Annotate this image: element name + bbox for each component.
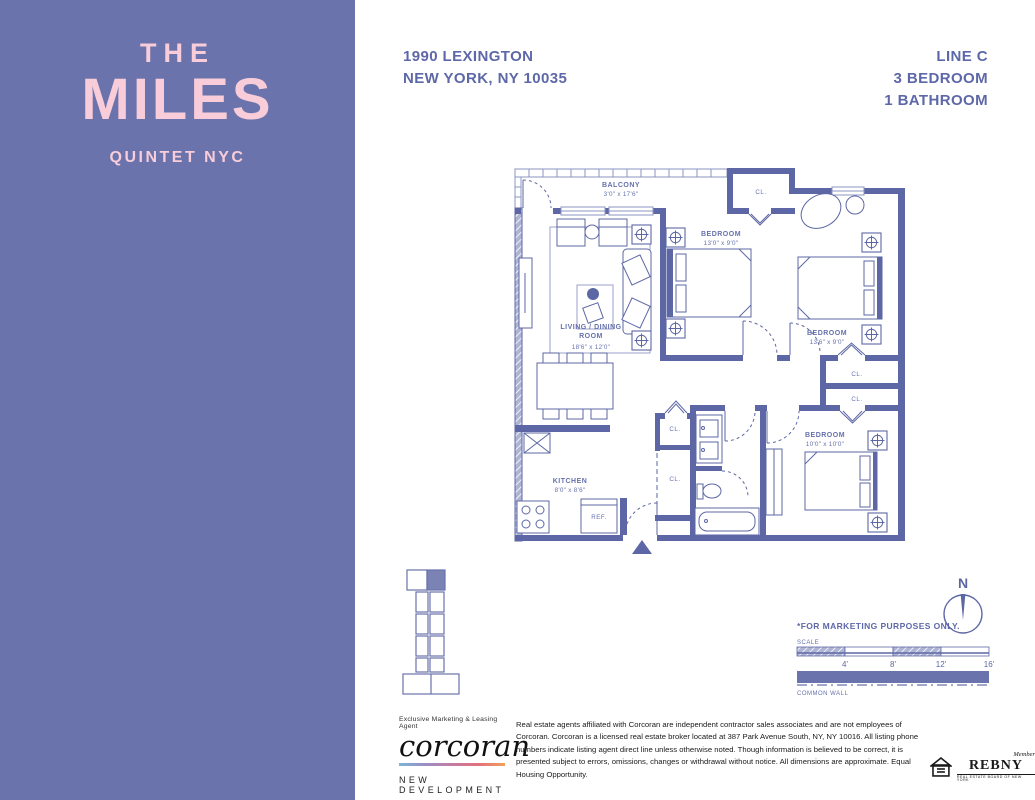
rebny-logo: Member REBNY REAL ESTATE BOARD OF NEW YO… [930, 752, 1035, 783]
compass-icon: N [933, 572, 993, 642]
brand-subtitle: QUINTET NYC [0, 149, 355, 167]
scale-bar [797, 647, 989, 656]
balcony-label: BALCONY [602, 182, 640, 189]
unit-bathrooms: 1 BATHROOM [884, 90, 988, 112]
common-wall-legend [797, 671, 989, 685]
entry-marker-icon [632, 540, 652, 554]
gradient-bar-icon [399, 763, 505, 766]
closet-label: CL. [669, 426, 680, 433]
closet-label: CL. [851, 396, 862, 403]
corcoran-wordmark: corcoran [399, 731, 509, 761]
living-label2: ROOM [579, 333, 603, 340]
brand-logo: THE MILES QUINTET NYC [0, 40, 355, 167]
unit-line: LINE C [884, 46, 988, 68]
rebny-text: Member REBNY REAL ESTATE BOARD OF NEW YO… [957, 752, 1035, 783]
bedroom2-label: BEDROOM [807, 330, 847, 337]
bedroom2-dims: 13'6" x 9'0" [810, 339, 845, 346]
rebny-tagline: REAL ESTATE BOARD OF NEW YORK [957, 774, 1035, 783]
balcony-dims: 3'0" x 17'6" [604, 191, 639, 198]
scale-tick: 12' [936, 660, 947, 669]
rebny-name-label: REBNY [969, 759, 1023, 773]
closet-label: CL. [851, 371, 862, 378]
scale-label: SCALE [797, 640, 819, 646]
unit-bedrooms: 3 BEDROOM [884, 68, 988, 90]
address-line1: 1990 LEXINGTON [403, 46, 567, 68]
compass-north-label: N [958, 575, 968, 591]
new-development-label: NEW DEVELOPMENT [399, 775, 509, 795]
common-wall-label: COMMON WALL [797, 691, 848, 697]
refrigerator-label: REF. [591, 514, 606, 521]
header-address: 1990 LEXINGTON NEW YORK, NY 10035 [403, 46, 567, 90]
closet-label: CL. [669, 476, 680, 483]
bedroom3-dims: 10'0" x 10'0" [806, 441, 844, 448]
corcoran-logo: Exclusive Marketing & Leasing Agent corc… [399, 716, 509, 795]
scale-tick: 4' [842, 660, 848, 669]
bedroom1-dims: 13'0" x 9'0" [704, 240, 739, 247]
scale-tick: 16' [984, 660, 995, 669]
page: { "sidebar": { "title_line1": "THE", "ti… [0, 0, 1035, 800]
closet-label: CL. [755, 189, 766, 196]
agent-label: Exclusive Marketing & Leasing Agent [399, 716, 509, 730]
kitchen-label: KITCHEN [553, 478, 588, 485]
legal-text: Real estate agents affiliated with Corco… [516, 719, 922, 781]
kitchen-dims: 8'0" x 8'6" [555, 487, 586, 494]
sidebar: THE MILES QUINTET NYC [0, 0, 355, 800]
brand-title-miles: MILES [0, 71, 355, 129]
bedroom1-label: BEDROOM [701, 231, 741, 238]
floorplan-drawing: BALCONY 3'0" x 17'6" LIVING / DINING ROO… [505, 163, 905, 557]
brand-title-the: THE [0, 40, 355, 67]
scale-legend: SCALE 4' 8' 12' 16' COMMON WALL [795, 638, 995, 700]
bedroom3-label: BEDROOM [805, 432, 845, 439]
address-line2: NEW YORK, NY 10035 [403, 68, 567, 90]
key-plan [398, 563, 464, 701]
living-label1: LIVING / DINING [560, 324, 621, 331]
living-dims: 18'6" x 12'0" [572, 344, 610, 351]
scale-tick: 8' [890, 660, 896, 669]
header-unit-info: LINE C 3 BEDROOM 1 BATHROOM [884, 46, 988, 111]
equal-housing-icon [930, 756, 952, 778]
